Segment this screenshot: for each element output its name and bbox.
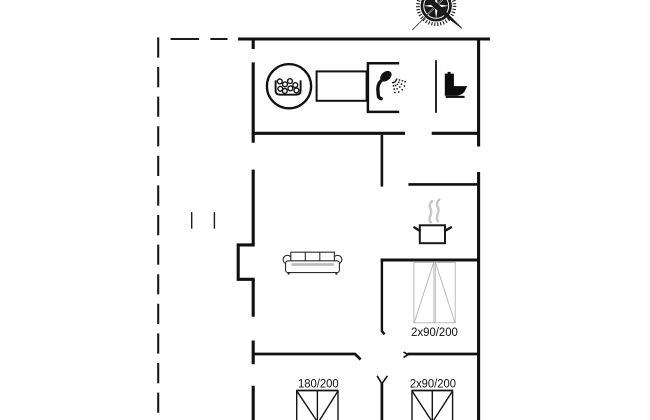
svg-text:2x90/200: 2x90/200	[411, 325, 458, 339]
svg-text:2x90/200: 2x90/200	[410, 377, 456, 391]
svg-text:180/200: 180/200	[298, 376, 339, 390]
